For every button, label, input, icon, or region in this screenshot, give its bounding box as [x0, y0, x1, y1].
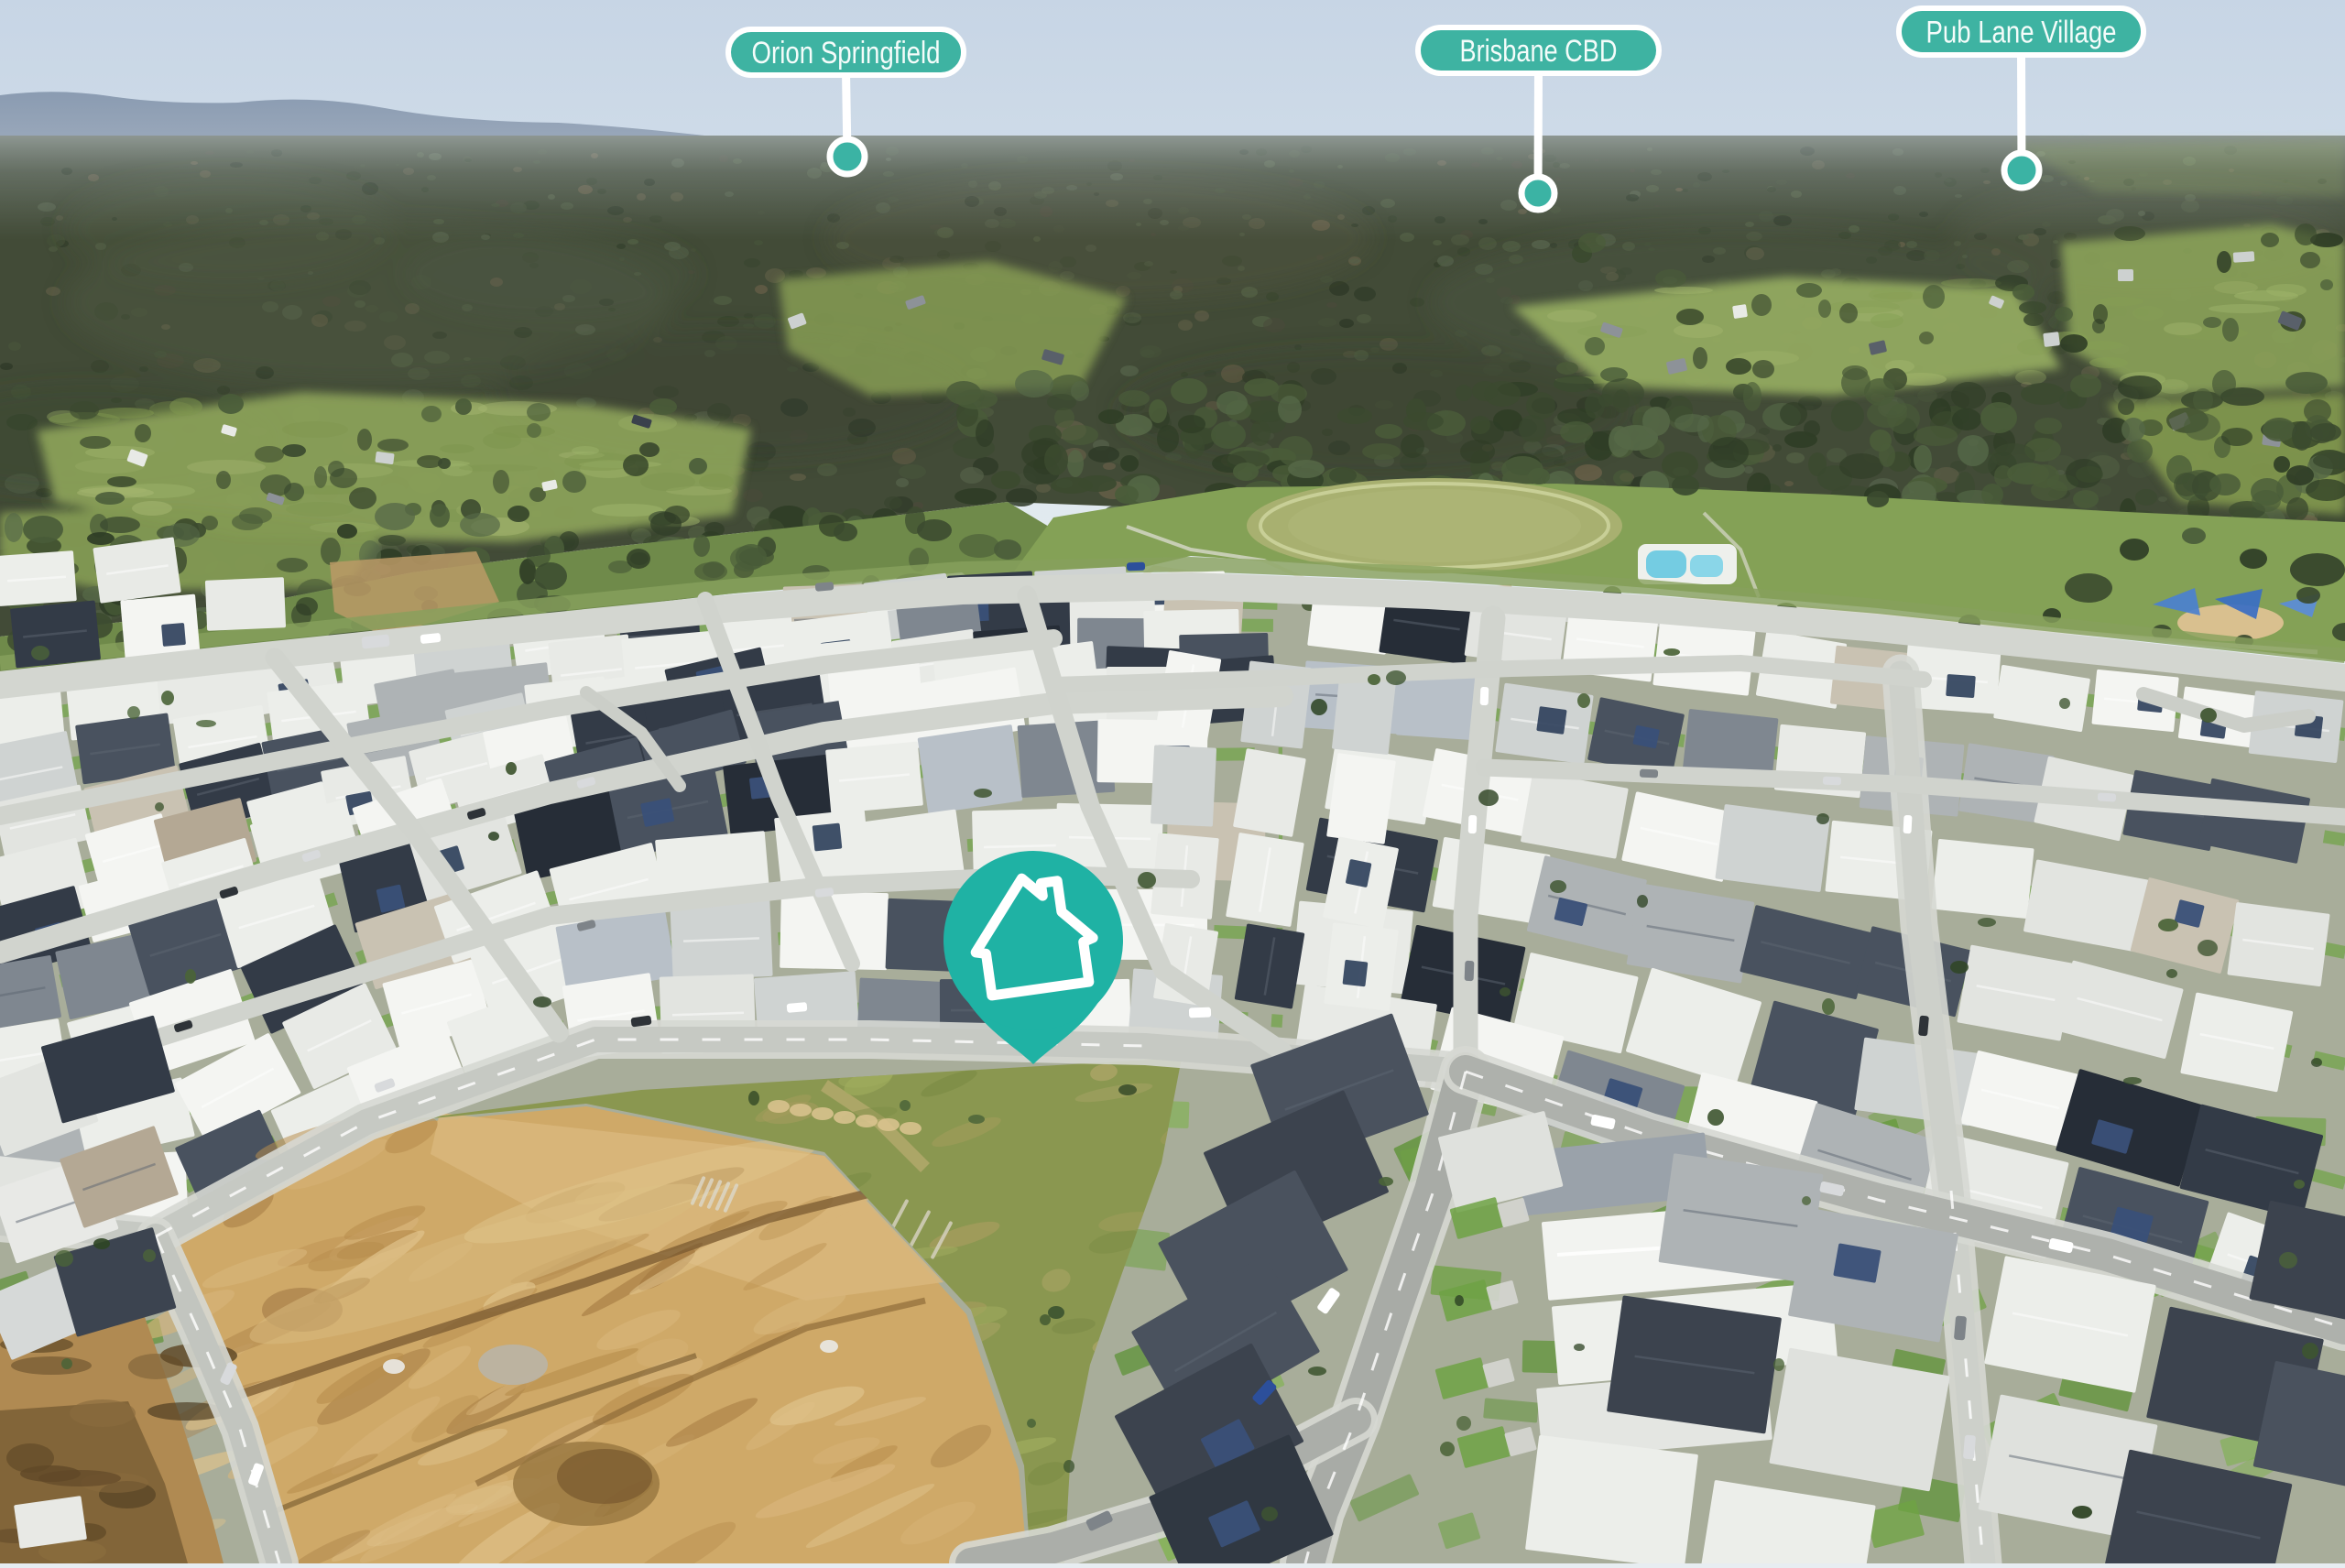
svg-text:Brisbane CBD: Brisbane CBD	[1460, 34, 1618, 69]
svg-text:Orion Springfield: Orion Springfield	[752, 36, 941, 71]
svg-text:Pub Lane Village: Pub Lane Village	[1926, 16, 2117, 50]
